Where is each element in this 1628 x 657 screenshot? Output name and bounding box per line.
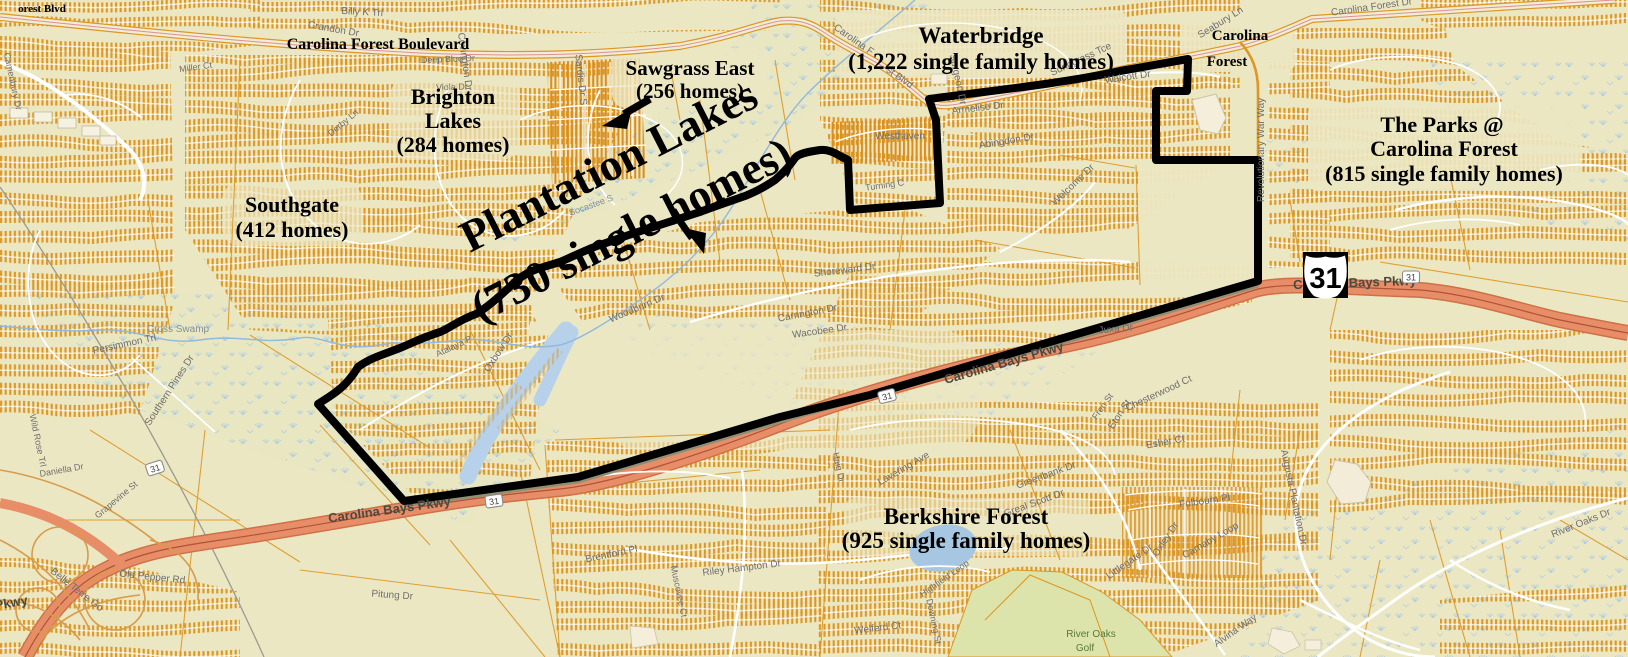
svg-text:31: 31 bbox=[1309, 263, 1341, 295]
svg-text:River Oaks: River Oaks bbox=[1066, 629, 1115, 640]
svg-text:Deep Blue Dr: Deep Blue Dr bbox=[421, 53, 475, 65]
svg-text:Berkshire Forest: Berkshire Forest bbox=[884, 504, 1049, 529]
svg-text:Forest: Forest bbox=[1207, 54, 1248, 70]
svg-text:Westhaven: Westhaven bbox=[875, 131, 925, 142]
svg-text:orest Blvd: orest Blvd bbox=[18, 3, 66, 15]
svg-text:Waterbridge: Waterbridge bbox=[918, 23, 1043, 48]
svg-text:(284 homes): (284 homes) bbox=[396, 132, 509, 157]
svg-text:31: 31 bbox=[1406, 273, 1416, 283]
svg-text:Lakes: Lakes bbox=[425, 108, 482, 133]
svg-text:The Parks @: The Parks @ bbox=[1380, 112, 1503, 137]
svg-text:Carolina Forest Boulevard: Carolina Forest Boulevard bbox=[287, 36, 470, 53]
svg-text:(925 single family homes): (925 single family homes) bbox=[842, 528, 1091, 553]
svg-text:31: 31 bbox=[488, 496, 499, 507]
svg-text:Southgate: Southgate bbox=[245, 192, 339, 217]
svg-text:(815 single family homes): (815 single family homes) bbox=[1325, 161, 1563, 186]
svg-text:Golf: Golf bbox=[1076, 643, 1095, 654]
svg-text:Billy K Trl: Billy K Trl bbox=[341, 6, 383, 19]
svg-text:Revolutionary War Way: Revolutionary War Way bbox=[1256, 98, 1267, 202]
svg-text:(1,222 single family homes): (1,222 single family homes) bbox=[848, 49, 1114, 74]
svg-text:Carolina: Carolina bbox=[1212, 28, 1269, 44]
svg-text:Carolina Forest: Carolina Forest bbox=[1370, 136, 1518, 161]
svg-text:Cross Swamp: Cross Swamp bbox=[147, 324, 210, 335]
svg-text:Brighton: Brighton bbox=[411, 84, 495, 109]
svg-text:(412 homes): (412 homes) bbox=[235, 217, 348, 242]
